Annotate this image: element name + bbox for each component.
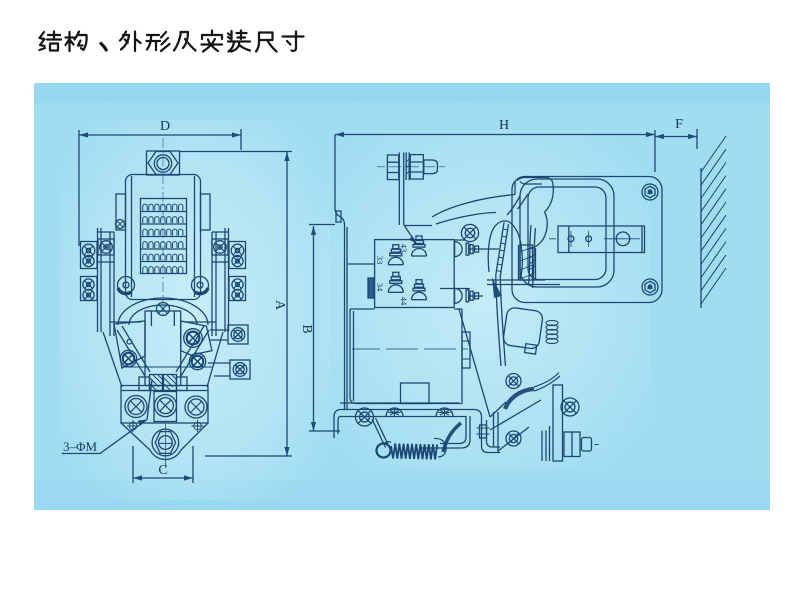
svg-text:A: A [272, 300, 287, 311]
svg-text:D: D [160, 119, 170, 134]
svg-text:C: C [158, 463, 167, 478]
svg-text:3–ΦM: 3–ΦM [63, 439, 98, 454]
svg-text:34: 34 [375, 283, 385, 292]
svg-text:B: B [299, 324, 314, 333]
svg-text:F: F [675, 117, 683, 132]
svg-text:H: H [499, 118, 509, 133]
svg-text:44: 44 [399, 297, 409, 306]
svg-text:43: 43 [399, 244, 409, 253]
svg-text:33: 33 [375, 256, 385, 265]
